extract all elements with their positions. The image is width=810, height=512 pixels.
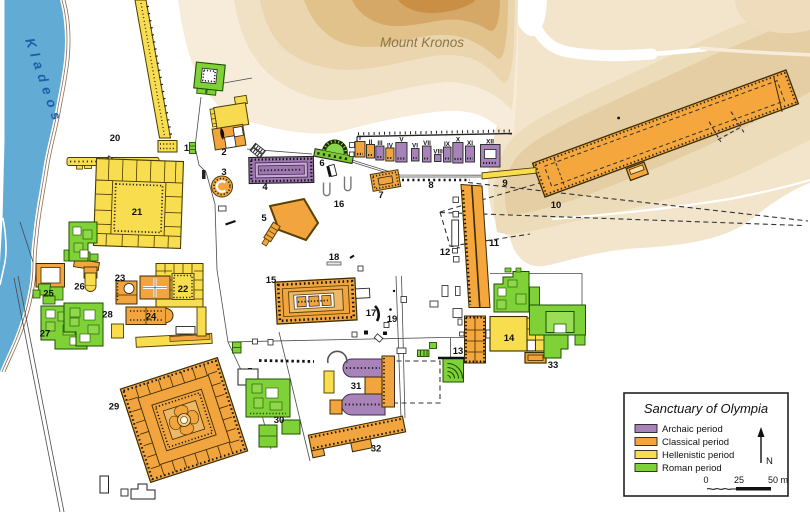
svg-text:N: N (766, 456, 773, 467)
svg-text:Sanctuary of Olympia: Sanctuary of Olympia (644, 401, 768, 416)
svg-text:32: 32 (371, 444, 382, 455)
svg-text:1: 1 (184, 143, 190, 154)
svg-text:2: 2 (221, 147, 226, 158)
svg-text:25: 25 (734, 475, 744, 485)
svg-text:24: 24 (146, 312, 157, 323)
svg-text:II: II (369, 139, 373, 146)
svg-text:18: 18 (329, 252, 340, 263)
svg-text:12: 12 (440, 247, 451, 258)
svg-text:Classical period: Classical period (662, 437, 729, 448)
svg-text:11: 11 (489, 238, 500, 249)
svg-text:9: 9 (502, 178, 507, 189)
svg-text:4: 4 (262, 182, 268, 193)
svg-text:23: 23 (115, 273, 126, 284)
svg-text:25: 25 (43, 289, 54, 300)
svg-text:50 m: 50 m (768, 475, 788, 485)
svg-text:30: 30 (274, 415, 285, 426)
svg-text:31: 31 (351, 381, 362, 392)
svg-text:VIII: VIII (433, 149, 443, 156)
svg-text:Hellenistic period: Hellenistic period (662, 450, 734, 461)
svg-text:13: 13 (453, 346, 464, 357)
svg-text:IV: IV (387, 143, 394, 150)
svg-text:21: 21 (132, 207, 143, 218)
svg-text:15: 15 (266, 275, 277, 286)
svg-text:IX: IX (444, 141, 451, 148)
svg-text:VII: VII (423, 140, 431, 147)
svg-text:3: 3 (221, 167, 226, 178)
svg-text:33: 33 (548, 360, 559, 371)
svg-text:22: 22 (178, 284, 189, 295)
svg-text:27: 27 (40, 329, 51, 340)
svg-text:14: 14 (504, 333, 515, 344)
svg-text:III: III (377, 140, 382, 147)
svg-text:0: 0 (703, 475, 708, 485)
svg-text:VI: VI (412, 143, 418, 150)
svg-text:17: 17 (366, 308, 377, 319)
svg-text:26: 26 (74, 282, 85, 293)
svg-text:Archaic period: Archaic period (662, 424, 723, 435)
svg-text:XI: XI (467, 140, 473, 147)
svg-text:Roman period: Roman period (662, 463, 722, 474)
svg-text:8: 8 (428, 180, 433, 191)
svg-text:19: 19 (387, 314, 398, 325)
svg-text:16: 16 (334, 199, 345, 210)
svg-text:7: 7 (378, 190, 383, 201)
svg-text:6: 6 (319, 158, 324, 169)
svg-text:28: 28 (102, 310, 113, 321)
svg-text:20: 20 (110, 133, 121, 144)
svg-text:5: 5 (261, 213, 267, 224)
svg-text:10: 10 (551, 200, 562, 211)
svg-text:Mount Kronos: Mount Kronos (380, 35, 464, 50)
svg-text:XII: XII (486, 139, 494, 146)
svg-text:29: 29 (109, 402, 120, 413)
svg-text:I: I (359, 135, 361, 142)
